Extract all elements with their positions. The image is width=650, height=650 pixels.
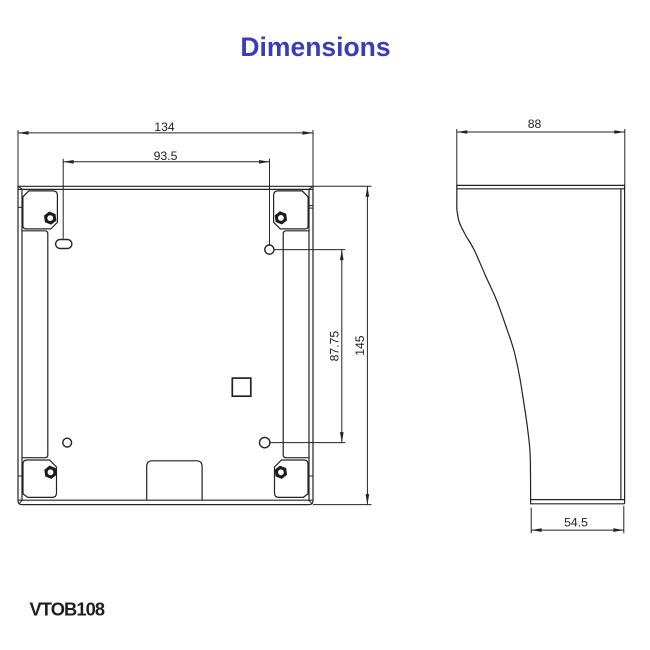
svg-text:87.75: 87.75	[328, 331, 342, 362]
svg-text:93.5: 93.5	[154, 149, 178, 163]
svg-text:54.5: 54.5	[564, 515, 588, 529]
svg-text:145: 145	[353, 335, 367, 356]
svg-text:134: 134	[154, 120, 175, 134]
svg-text:Dimensions: Dimensions	[240, 32, 390, 62]
svg-text:88: 88	[528, 117, 542, 131]
svg-text:VTOB108: VTOB108	[30, 599, 105, 620]
